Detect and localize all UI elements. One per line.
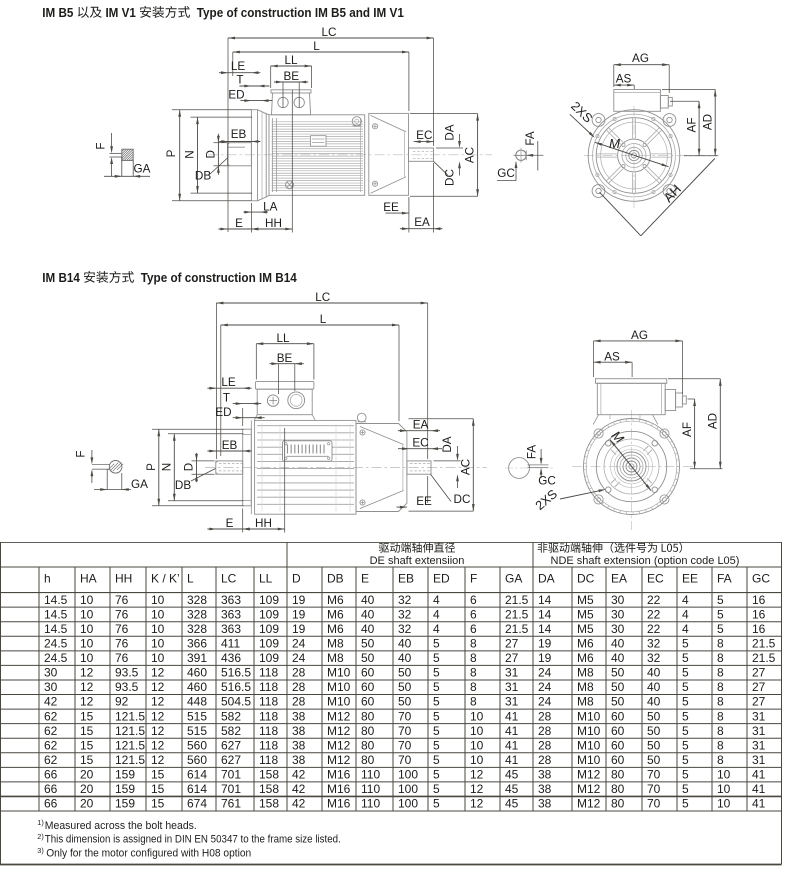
svg-text:5: 5	[433, 695, 440, 709]
svg-text:EE: EE	[682, 571, 698, 585]
svg-text:EE: EE	[383, 201, 399, 214]
svg-text:8: 8	[717, 651, 724, 665]
svg-text:10: 10	[151, 636, 165, 650]
svg-text:10: 10	[151, 622, 165, 636]
svg-text:38: 38	[292, 738, 306, 752]
svg-text:5: 5	[717, 622, 724, 636]
svg-text:32: 32	[647, 636, 661, 650]
svg-text:M5: M5	[577, 593, 594, 607]
svg-text:L: L	[187, 571, 194, 585]
svg-text:4: 4	[433, 593, 440, 607]
svg-text:F: F	[95, 142, 108, 149]
svg-text:FA: FA	[524, 131, 537, 145]
svg-text:80: 80	[611, 797, 625, 811]
svg-text:5: 5	[682, 680, 689, 694]
svg-text:6: 6	[470, 622, 477, 636]
svg-text:5: 5	[717, 593, 724, 607]
svg-text:100: 100	[398, 797, 418, 811]
svg-text:76: 76	[115, 636, 129, 650]
svg-text:EC: EC	[416, 129, 432, 142]
svg-text:5: 5	[682, 753, 689, 767]
svg-text:12: 12	[80, 695, 94, 709]
svg-text:70: 70	[647, 782, 661, 796]
svg-text:6: 6	[470, 607, 477, 621]
svg-text:28: 28	[292, 695, 306, 709]
svg-text:70: 70	[398, 738, 412, 752]
svg-text:GA: GA	[131, 478, 148, 491]
svg-text:M10: M10	[577, 738, 601, 752]
svg-text:10: 10	[470, 753, 484, 767]
svg-text:32: 32	[398, 607, 412, 621]
svg-text:12: 12	[151, 680, 165, 694]
svg-text:8: 8	[470, 680, 477, 694]
svg-text:560: 560	[187, 738, 207, 752]
svg-text:M8: M8	[327, 651, 344, 665]
svg-text:LC: LC	[221, 571, 237, 585]
svg-text:24.5: 24.5	[44, 636, 68, 650]
svg-text:16: 16	[752, 622, 766, 636]
svg-text:50: 50	[361, 636, 375, 650]
svg-text:27: 27	[505, 651, 519, 665]
svg-text:31: 31	[505, 666, 519, 680]
svg-text:10: 10	[80, 593, 94, 607]
svg-text:366: 366	[187, 636, 207, 650]
svg-text:50: 50	[647, 724, 661, 738]
svg-text:21.5: 21.5	[505, 593, 529, 607]
svg-text:Type of construction IM B5 and: Type of construction IM B5 and IM V1	[197, 5, 404, 20]
svg-text:24: 24	[538, 680, 552, 694]
svg-text:20: 20	[80, 797, 94, 811]
svg-text:M12: M12	[327, 738, 351, 752]
svg-text:8: 8	[470, 695, 477, 709]
svg-text:5: 5	[682, 768, 689, 782]
svg-text:40: 40	[647, 680, 661, 694]
svg-text:5: 5	[433, 709, 440, 723]
svg-text:24: 24	[538, 666, 552, 680]
svg-text:110: 110	[361, 797, 380, 811]
svg-text:8: 8	[717, 636, 724, 650]
svg-text:M5: M5	[577, 622, 594, 636]
svg-text:31: 31	[505, 695, 519, 709]
svg-text:328: 328	[187, 607, 207, 621]
svg-text:5: 5	[433, 753, 440, 767]
svg-text:BE: BE	[277, 352, 293, 365]
svg-text:70: 70	[398, 753, 412, 767]
svg-text:5: 5	[433, 651, 440, 665]
svg-text:76: 76	[115, 593, 129, 607]
svg-text:15: 15	[80, 738, 94, 752]
svg-text:41: 41	[505, 709, 519, 723]
svg-text:21.5: 21.5	[505, 622, 529, 636]
svg-text:12: 12	[80, 666, 94, 680]
svg-text:5: 5	[433, 680, 440, 694]
svg-text:LC: LC	[322, 26, 337, 39]
svg-text:22: 22	[647, 593, 661, 607]
svg-text:38: 38	[538, 797, 552, 811]
svg-text:27: 27	[752, 695, 766, 709]
svg-text:ED: ED	[228, 89, 244, 102]
svg-text:5: 5	[682, 738, 689, 752]
svg-text:45: 45	[505, 768, 519, 782]
svg-text:460: 460	[187, 680, 207, 694]
svg-text:8: 8	[470, 666, 477, 680]
svg-text:F: F	[75, 450, 88, 457]
svg-text:FA: FA	[525, 445, 538, 459]
svg-text:363: 363	[221, 622, 241, 636]
svg-text:40: 40	[361, 622, 375, 636]
svg-text:8: 8	[717, 738, 724, 752]
svg-text:M8: M8	[577, 695, 594, 709]
svg-text:15: 15	[80, 709, 94, 723]
svg-text:8: 8	[470, 636, 477, 650]
svg-text:50: 50	[611, 680, 625, 694]
svg-text:M6: M6	[577, 636, 594, 650]
svg-text:80: 80	[361, 753, 375, 767]
svg-text:This dimension is assigned in: This dimension is assigned in DIN EN 503…	[45, 834, 341, 846]
svg-text:AG: AG	[632, 52, 649, 65]
svg-text:LE: LE	[231, 60, 246, 73]
svg-text:M8: M8	[577, 680, 594, 694]
svg-text:DA: DA	[441, 436, 454, 452]
svg-text:10: 10	[470, 738, 484, 752]
svg-text:15: 15	[80, 753, 94, 767]
svg-text:21.5: 21.5	[752, 636, 776, 650]
svg-text:5: 5	[682, 666, 689, 680]
svg-text:5: 5	[433, 724, 440, 738]
svg-text:EB: EB	[222, 439, 238, 452]
svg-text:M10: M10	[327, 680, 351, 694]
svg-text:110: 110	[361, 768, 380, 782]
svg-text:27: 27	[752, 666, 766, 680]
svg-text:14.5: 14.5	[44, 607, 68, 621]
svg-text:32: 32	[647, 651, 661, 665]
svg-text:12: 12	[470, 768, 484, 782]
svg-text:10: 10	[80, 636, 94, 650]
svg-text:93.5: 93.5	[115, 666, 139, 680]
svg-text:391: 391	[187, 651, 207, 665]
svg-text:40: 40	[398, 636, 412, 650]
svg-text:38: 38	[538, 782, 552, 796]
svg-text:HH: HH	[115, 571, 132, 585]
svg-text:14.5: 14.5	[44, 622, 68, 636]
svg-text:LC: LC	[315, 291, 330, 304]
svg-text:80: 80	[361, 738, 375, 752]
svg-text:K / K’: K / K’	[151, 571, 180, 585]
svg-text:30: 30	[611, 622, 625, 636]
svg-text:70: 70	[398, 724, 412, 738]
svg-text:BE: BE	[284, 70, 300, 83]
svg-text:h: h	[44, 571, 51, 585]
svg-text:4: 4	[682, 607, 689, 621]
svg-text:5: 5	[433, 797, 440, 811]
svg-text:EA: EA	[413, 419, 429, 432]
svg-text:5: 5	[682, 724, 689, 738]
svg-text:AF: AF	[681, 422, 694, 437]
svg-text:IM V1: IM V1	[105, 5, 135, 20]
svg-text:516.5: 516.5	[221, 680, 251, 694]
svg-text:41: 41	[752, 797, 766, 811]
svg-text:30: 30	[611, 607, 625, 621]
svg-text:M8: M8	[327, 636, 344, 650]
svg-text:M5: M5	[577, 607, 594, 621]
svg-text:40: 40	[611, 636, 625, 650]
svg-text:109: 109	[259, 622, 279, 636]
svg-text:42: 42	[44, 695, 58, 709]
svg-text:M10: M10	[577, 724, 601, 738]
svg-text:5: 5	[682, 709, 689, 723]
svg-text:HH: HH	[265, 217, 282, 230]
svg-text:38: 38	[292, 709, 306, 723]
svg-text:701: 701	[221, 782, 241, 796]
svg-text:M12: M12	[327, 724, 351, 738]
svg-text:62: 62	[44, 724, 58, 738]
svg-text:12: 12	[151, 753, 165, 767]
svg-text:5: 5	[682, 651, 689, 665]
svg-text:EC: EC	[412, 437, 428, 450]
svg-text:10: 10	[717, 768, 731, 782]
svg-text:32: 32	[398, 593, 412, 607]
svg-text:10: 10	[80, 622, 94, 636]
svg-text:M6: M6	[327, 593, 344, 607]
svg-text:10: 10	[151, 593, 165, 607]
svg-text:M12: M12	[327, 753, 351, 767]
svg-text:12: 12	[151, 666, 165, 680]
svg-text:EB: EB	[398, 571, 414, 585]
svg-text:582: 582	[221, 709, 241, 723]
svg-text:IM B5: IM B5	[42, 5, 73, 20]
svg-text:60: 60	[361, 666, 375, 680]
svg-text:M12: M12	[577, 797, 601, 811]
svg-text:41: 41	[752, 782, 766, 796]
svg-text:M16: M16	[327, 768, 351, 782]
svg-text:761: 761	[221, 797, 241, 811]
svg-text:5: 5	[717, 607, 724, 621]
svg-text:60: 60	[361, 680, 375, 694]
svg-text:AD: AD	[707, 413, 720, 429]
svg-text:38: 38	[292, 753, 306, 767]
svg-text:AG: AG	[631, 329, 648, 342]
svg-text:42: 42	[292, 797, 306, 811]
svg-text:M8: M8	[577, 666, 594, 680]
svg-text:80: 80	[611, 768, 625, 782]
svg-text:12: 12	[151, 738, 165, 752]
svg-text:66: 66	[44, 782, 58, 796]
svg-text:42: 42	[292, 782, 306, 796]
svg-text:21.5: 21.5	[752, 651, 776, 665]
svg-text:M6: M6	[327, 622, 344, 636]
svg-text:M12: M12	[327, 709, 351, 723]
svg-text:76: 76	[115, 607, 129, 621]
svg-text:AS: AS	[616, 72, 632, 85]
svg-text:159: 159	[115, 782, 135, 796]
svg-text:19: 19	[292, 607, 306, 621]
svg-text:28: 28	[538, 724, 552, 738]
svg-text:5: 5	[433, 666, 440, 680]
svg-text:121.5: 121.5	[115, 738, 145, 752]
svg-text:27: 27	[752, 680, 766, 694]
svg-text:30: 30	[44, 666, 58, 680]
svg-text:19: 19	[538, 651, 552, 665]
svg-text:100: 100	[398, 768, 418, 782]
svg-text:5: 5	[433, 738, 440, 752]
svg-text:14.5: 14.5	[44, 593, 68, 607]
svg-text:109: 109	[259, 593, 279, 607]
svg-text:70: 70	[647, 797, 661, 811]
svg-text:10: 10	[151, 651, 165, 665]
svg-text:80: 80	[361, 709, 375, 723]
svg-text:121.5: 121.5	[115, 724, 145, 738]
svg-text:159: 159	[115, 797, 135, 811]
svg-text:28: 28	[292, 680, 306, 694]
svg-text:T: T	[223, 392, 230, 405]
svg-text:4: 4	[433, 607, 440, 621]
svg-text:F: F	[470, 571, 477, 585]
svg-text:674: 674	[187, 797, 207, 811]
svg-text:4: 4	[682, 593, 689, 607]
svg-text:T: T	[236, 74, 243, 87]
svg-text:Only for the motor configured: Only for the motor configured with H08 o…	[46, 847, 251, 859]
svg-text:38: 38	[538, 768, 552, 782]
svg-text:GA: GA	[505, 571, 522, 585]
svg-text:GC: GC	[497, 167, 515, 180]
svg-text:M10: M10	[577, 753, 601, 767]
svg-text:15: 15	[151, 782, 165, 796]
svg-text:10: 10	[151, 607, 165, 621]
svg-text:E: E	[235, 217, 243, 230]
svg-text:12: 12	[470, 782, 484, 796]
svg-text:DA: DA	[443, 124, 456, 140]
svg-text:80: 80	[361, 724, 375, 738]
svg-text:2XS: 2XS	[533, 487, 560, 513]
svg-text:IM B14: IM B14	[42, 270, 80, 285]
svg-text:41: 41	[752, 768, 766, 782]
svg-text:118: 118	[259, 695, 278, 709]
svg-text:HH: HH	[255, 517, 272, 530]
svg-text:LE: LE	[221, 376, 236, 389]
svg-text:10: 10	[717, 782, 731, 796]
svg-text:8: 8	[717, 695, 724, 709]
svg-text:LL: LL	[276, 332, 290, 345]
svg-text:14: 14	[538, 593, 552, 607]
svg-text:5: 5	[433, 636, 440, 650]
svg-text:30: 30	[611, 593, 625, 607]
svg-text:60: 60	[611, 753, 625, 767]
svg-text:D: D	[292, 571, 301, 585]
svg-text:5: 5	[433, 768, 440, 782]
svg-text:12: 12	[470, 797, 484, 811]
svg-text:28: 28	[538, 709, 552, 723]
svg-text:159: 159	[115, 768, 135, 782]
svg-text:LL: LL	[259, 571, 273, 585]
svg-text:70: 70	[647, 768, 661, 782]
svg-text:76: 76	[115, 651, 129, 665]
svg-text:M12: M12	[577, 768, 601, 782]
svg-text:516.5: 516.5	[221, 666, 251, 680]
svg-text:N: N	[161, 463, 174, 471]
svg-text:158: 158	[259, 782, 279, 796]
svg-text:N: N	[183, 150, 196, 158]
svg-text:50: 50	[398, 695, 412, 709]
svg-text:4: 4	[433, 622, 440, 636]
svg-text:31: 31	[752, 724, 766, 738]
svg-text:515: 515	[187, 724, 207, 738]
svg-text:ED: ED	[215, 406, 231, 419]
svg-text:8: 8	[717, 680, 724, 694]
svg-text:109: 109	[259, 607, 279, 621]
svg-text:LA: LA	[263, 201, 278, 214]
svg-text:DC: DC	[577, 571, 595, 585]
svg-text:50: 50	[398, 666, 412, 680]
svg-text:118: 118	[259, 666, 278, 680]
svg-text:50: 50	[611, 666, 625, 680]
svg-text:627: 627	[221, 753, 241, 767]
svg-text:M10: M10	[577, 709, 601, 723]
svg-text:4: 4	[682, 622, 689, 636]
svg-text:P: P	[145, 463, 158, 471]
svg-text:701: 701	[221, 768, 241, 782]
svg-text:8: 8	[717, 724, 724, 738]
svg-text:AD: AD	[701, 114, 714, 130]
svg-text:8: 8	[717, 753, 724, 767]
svg-text:363: 363	[221, 593, 241, 607]
svg-text:560: 560	[187, 753, 207, 767]
svg-text:45: 45	[505, 797, 519, 811]
svg-text:22: 22	[647, 622, 661, 636]
svg-text:460: 460	[187, 666, 207, 680]
svg-text:8: 8	[470, 651, 477, 665]
svg-text:5: 5	[682, 636, 689, 650]
svg-text:328: 328	[187, 593, 207, 607]
svg-text:31: 31	[752, 709, 766, 723]
svg-text:60: 60	[611, 738, 625, 752]
svg-text:M6: M6	[577, 651, 594, 665]
svg-text:19: 19	[292, 622, 306, 636]
svg-text:42: 42	[292, 768, 306, 782]
svg-text:60: 60	[611, 724, 625, 738]
svg-text:32: 32	[398, 622, 412, 636]
svg-text:100: 100	[398, 782, 418, 796]
svg-text:45: 45	[505, 782, 519, 796]
svg-text:121.5: 121.5	[115, 709, 145, 723]
svg-text:40: 40	[361, 607, 375, 621]
svg-text:10: 10	[470, 724, 484, 738]
svg-text:8: 8	[717, 666, 724, 680]
svg-text:EA: EA	[414, 216, 430, 229]
svg-text:AC: AC	[460, 459, 473, 475]
svg-text:20: 20	[80, 782, 94, 796]
svg-text:109: 109	[259, 651, 279, 665]
svg-text:118: 118	[259, 709, 278, 723]
svg-text:DB: DB	[327, 571, 344, 585]
svg-text:62: 62	[44, 709, 58, 723]
svg-text:28: 28	[538, 738, 552, 752]
svg-text:2XS: 2XS	[568, 99, 595, 126]
svg-text:28: 28	[292, 666, 306, 680]
svg-text:EA: EA	[611, 571, 627, 585]
svg-text:DA: DA	[538, 571, 555, 585]
svg-text:158: 158	[259, 768, 279, 782]
svg-text:LL: LL	[284, 54, 298, 67]
svg-text:DB: DB	[195, 170, 211, 183]
svg-text:L: L	[320, 313, 327, 326]
svg-text:EB: EB	[231, 128, 247, 141]
svg-text:E: E	[361, 571, 369, 585]
svg-text:AS: AS	[604, 350, 620, 363]
svg-text:M16: M16	[327, 797, 351, 811]
svg-text:10: 10	[717, 797, 731, 811]
svg-text:118: 118	[259, 738, 278, 752]
svg-text:10: 10	[80, 651, 94, 665]
